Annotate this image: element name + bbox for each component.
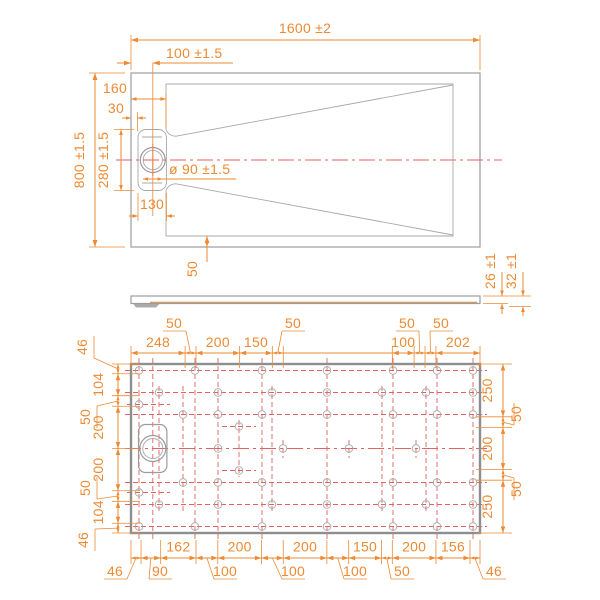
dimension-arrow xyxy=(474,351,481,355)
dimension-arrow xyxy=(425,351,430,354)
dimension-arrow xyxy=(349,556,356,560)
dim-label: 250 xyxy=(479,378,495,402)
dimension-arrow xyxy=(205,236,210,243)
dim-label: 200 xyxy=(228,539,252,555)
dimension-arrow xyxy=(501,423,504,428)
dimension-arrow xyxy=(116,364,119,369)
dimension-arrow xyxy=(470,556,475,559)
dimension-arrow xyxy=(116,491,119,496)
dim-total-height: 32 ±1 xyxy=(503,253,519,289)
dim-label: 162 xyxy=(166,539,190,555)
dimension-arrow xyxy=(131,556,136,559)
dim-label: 248 xyxy=(146,334,170,350)
dimension-arrow xyxy=(255,556,262,560)
dimension-arrow xyxy=(476,556,481,559)
dimension-arrow xyxy=(116,369,119,374)
dimension-arrow xyxy=(116,402,119,407)
dim-chain-right: 2505020050250 xyxy=(476,364,524,533)
dimension-arrow xyxy=(133,214,139,218)
dim-label: 50 xyxy=(285,315,301,331)
dimension-arrow xyxy=(116,501,120,508)
leader-line xyxy=(186,331,191,353)
dimension-arrow xyxy=(116,406,120,413)
dimension-arrow xyxy=(501,417,504,422)
dimension-arrow xyxy=(279,351,284,354)
bottom-view xyxy=(125,358,487,539)
dimension-arrow xyxy=(143,177,148,180)
floor-wing xyxy=(166,184,176,191)
dimension-arrow xyxy=(436,556,443,560)
leader-line xyxy=(387,558,391,579)
dimension-arrow xyxy=(463,556,470,560)
dimension-arrow xyxy=(116,396,119,401)
dimension-arrow xyxy=(501,470,504,475)
dim-label: 46 xyxy=(74,339,90,355)
leader-line xyxy=(94,358,118,369)
dimension-arrow xyxy=(131,38,138,43)
dimension-arrow xyxy=(138,116,143,119)
dimension-arrow xyxy=(116,484,120,491)
dimension-arrow xyxy=(408,351,415,355)
dimension-arrow xyxy=(116,374,120,381)
dim-label: 100 xyxy=(281,563,305,579)
dimension-arrow xyxy=(196,556,203,560)
dimension-arrow xyxy=(521,307,525,313)
dim-drain-diameter: ø 90 ±1.5 xyxy=(169,161,230,177)
dimension-arrow xyxy=(266,351,273,355)
dimension-arrow xyxy=(131,351,138,355)
dim-label: 90 xyxy=(152,563,168,579)
dimension-arrow xyxy=(190,556,197,560)
floor-wing xyxy=(166,130,176,137)
dimension-arrow xyxy=(93,73,98,80)
dimension-arrow xyxy=(501,410,505,417)
dimension-arrow xyxy=(272,351,277,354)
dim-overall-depth: 800 ±1.5 xyxy=(71,132,87,188)
dimension-arrow xyxy=(205,242,208,247)
dim-label: 100 xyxy=(343,563,367,579)
dimension-arrow xyxy=(93,240,98,247)
profile-drain-boss xyxy=(133,304,160,308)
dimension-arrow xyxy=(119,185,123,191)
dimension-arrow xyxy=(436,351,443,355)
technical-drawing-shower-tray: 1600 ±2100 ±1.516030800 ±1.5280 ±1.5ø 90… xyxy=(0,0,600,600)
dim-label: 250 xyxy=(479,495,495,519)
leader-line xyxy=(475,558,483,579)
dimension-arrow xyxy=(421,351,426,354)
dim-drain-offset: 100 ±1.5 xyxy=(166,45,222,61)
dimension-arrow xyxy=(388,556,393,559)
dim-label: 200 xyxy=(293,539,317,555)
leader-line xyxy=(149,558,151,579)
dimension-arrow xyxy=(501,527,505,534)
dim-floor-margin: 50 xyxy=(184,261,200,277)
leader-line xyxy=(95,528,118,529)
top-view-dimensions: 1600 ±2100 ±1.516030800 ±1.5280 ±1.5ø 90… xyxy=(71,20,480,277)
dimension-arrow xyxy=(192,351,197,354)
leader-line xyxy=(278,331,282,353)
side-view xyxy=(131,296,480,308)
dim-label: 202 xyxy=(446,334,470,350)
dimension-arrow xyxy=(342,556,349,560)
dim-edge-to-floor: 160 xyxy=(103,80,127,96)
dimension-arrow xyxy=(116,517,120,524)
dimension-arrow xyxy=(211,556,218,560)
dimension-arrow xyxy=(116,529,119,534)
drawing-svg: 1600 ±2100 ±1.516030800 ±1.5280 ±1.5ø 90… xyxy=(0,0,600,600)
leader-line xyxy=(419,331,420,353)
dimension-arrow xyxy=(261,556,268,560)
dim-label: 200 xyxy=(90,415,106,439)
dimension-arrow xyxy=(500,291,504,297)
slope-line xyxy=(176,85,453,136)
dim-label: 50 xyxy=(508,406,524,422)
dim-label: 150 xyxy=(244,334,268,350)
dimension-arrow xyxy=(154,556,161,560)
dim-label: 46 xyxy=(75,532,91,548)
dim-label: 156 xyxy=(441,539,465,555)
dim-label: 50 xyxy=(77,480,93,496)
dim-label: 200 xyxy=(206,334,230,350)
dimension-arrow xyxy=(501,480,505,487)
dim-label: 50 xyxy=(166,315,182,331)
dimension-arrow xyxy=(320,556,327,560)
dim-label: 104 xyxy=(90,500,106,524)
dimension-arrow xyxy=(185,351,190,354)
dimension-arrow xyxy=(381,556,386,559)
dim-overall-width: 1600 ±2 xyxy=(279,20,331,36)
dimension-arrow xyxy=(501,364,505,371)
dimension-arrow xyxy=(158,177,163,180)
dim-label: 200 xyxy=(402,539,426,555)
dimension-arrow xyxy=(116,523,119,528)
dim-label: 46 xyxy=(107,563,123,579)
leader-line xyxy=(97,401,118,406)
dimension-arrow xyxy=(137,556,142,559)
dimension-arrow xyxy=(392,556,399,560)
top-view xyxy=(116,63,502,247)
rib-grid xyxy=(125,358,487,539)
dimension-arrow xyxy=(131,97,137,101)
dimension-arrow xyxy=(277,556,284,560)
dimension-arrow xyxy=(431,351,436,354)
dim-label: 150 xyxy=(353,539,377,555)
dim-recess-length: 280 ±1.5 xyxy=(95,132,111,188)
dimension-arrow xyxy=(521,291,525,297)
dimension-arrow xyxy=(116,389,120,396)
dimension-arrow xyxy=(124,61,131,66)
dimension-arrow xyxy=(375,556,382,560)
dimension-arrow xyxy=(429,556,436,560)
dim-label: 50 xyxy=(394,563,410,579)
dim-chain-top: 24850200150501005050202 xyxy=(131,315,480,368)
dim-recess-width: 130 xyxy=(140,196,164,212)
dim-label: 100 xyxy=(213,563,237,579)
dimension-arrow xyxy=(196,351,203,355)
dim-label: 104 xyxy=(90,373,106,397)
dimension-arrow xyxy=(126,116,131,119)
dimension-arrow xyxy=(283,556,290,560)
dimension-arrow xyxy=(141,556,148,560)
dim-label: 200 xyxy=(479,436,495,460)
dimension-arrow xyxy=(166,214,172,218)
dimension-arrow xyxy=(116,449,120,456)
dim-label: 50 xyxy=(399,315,415,331)
dimension-arrow xyxy=(501,476,504,481)
slope-line xyxy=(176,184,453,235)
leader-line xyxy=(97,496,118,499)
dimension-arrow xyxy=(501,427,505,434)
dimension-arrow xyxy=(116,442,120,449)
dim-label: 200 xyxy=(90,458,106,482)
dim-label: 100 xyxy=(391,334,415,350)
dimension-arrow xyxy=(161,97,167,101)
dimension-arrow xyxy=(161,556,168,560)
dim-label: 50 xyxy=(508,481,524,497)
dimension-arrow xyxy=(501,463,505,470)
dimension-arrow xyxy=(414,351,419,354)
dim-label: 46 xyxy=(486,563,502,579)
leader-line xyxy=(503,475,514,478)
dimension-arrow xyxy=(392,351,399,355)
dim-edge-height: 26 ±1 xyxy=(482,253,498,289)
dimension-arrow xyxy=(473,38,480,43)
dim-rim-thickness: 30 xyxy=(108,100,124,116)
dimension-arrow xyxy=(500,304,504,310)
dimension-arrow xyxy=(233,351,240,355)
dimension-arrow xyxy=(116,497,119,502)
dimension-arrow xyxy=(153,61,160,66)
dimension-arrow xyxy=(119,130,123,136)
dimension-arrow xyxy=(240,351,247,355)
dim-chain-bottom: 46901621002001002001001505020015646 xyxy=(104,539,506,580)
side-view-dimensions: 26 ±132 ±1 xyxy=(482,253,531,316)
dimension-arrow xyxy=(327,556,334,560)
leader-line xyxy=(127,558,136,579)
dimension-arrow xyxy=(179,351,186,355)
dimension-arrow xyxy=(218,556,225,560)
dim-label: 50 xyxy=(433,315,449,331)
